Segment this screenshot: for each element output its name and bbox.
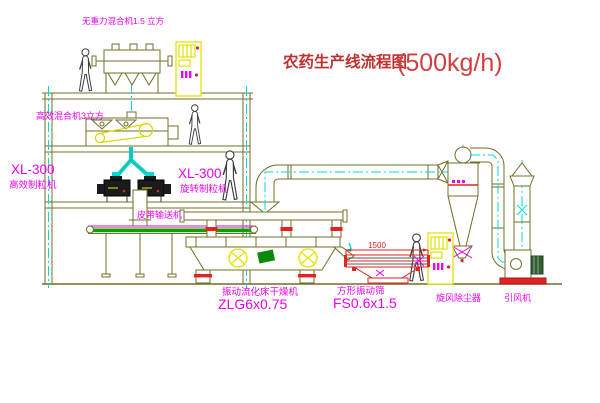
gravity-free-mixer: [92, 44, 172, 118]
vortex-outlet: [455, 147, 471, 163]
label-belt-conveyor: 皮带输送机: [137, 209, 182, 220]
label-fan: 引风机: [504, 292, 531, 303]
conveyor-belt: [88, 229, 256, 232]
sieve-dimension-label: 1500: [368, 241, 386, 250]
indicator-light-icon: [196, 46, 199, 49]
process-flow-diagram: 1500 农药生产线流程图 (500kg/h) 无重力混合机1.5 立方 高效混…: [0, 0, 600, 403]
screenshot-root: 1500 农药生产线流程图 (500kg/h) 无重力混合机1.5 立方 高效混…: [0, 0, 600, 403]
induced-draft-fan: [500, 250, 546, 284]
label-gravity-mixer: 无重力混合机1.5 立方: [82, 16, 164, 26]
fan-base: [500, 278, 546, 284]
label-granulator-left-model: XL-300: [11, 162, 55, 177]
title-capacity: (500kg/h): [397, 49, 503, 77]
label-dryer-model: ZLG6x0.75: [218, 296, 287, 312]
label-high-eff-mixer: 高效混合机3立方: [36, 110, 104, 121]
worker-figure: [410, 234, 424, 281]
indicator-light-icon: [447, 265, 450, 268]
control-cabinet-top: [176, 42, 201, 96]
label-sieve-model: FS0.6x1.5: [333, 295, 397, 311]
label-granulator-right: 旋转制粒机: [180, 183, 228, 195]
indicator-light-icon: [195, 73, 198, 76]
fluid-bed-dryer: [180, 210, 354, 283]
label-granulator-left: 高效制粒机: [9, 179, 57, 191]
rain-cap-icon: [512, 163, 532, 176]
control-cabinet-right: [428, 233, 453, 284]
worker-figure: [79, 49, 91, 91]
indicator-light-icon: [448, 238, 451, 241]
label-cyclone: 旋风除尘器: [436, 292, 481, 303]
granulator-left: [97, 172, 130, 202]
exhaust-duct: [251, 161, 452, 212]
page-title: 农药生产线流程图: [282, 52, 407, 71]
worker-figure: [189, 105, 200, 145]
label-granulator-right-model: XL-300: [178, 166, 222, 181]
